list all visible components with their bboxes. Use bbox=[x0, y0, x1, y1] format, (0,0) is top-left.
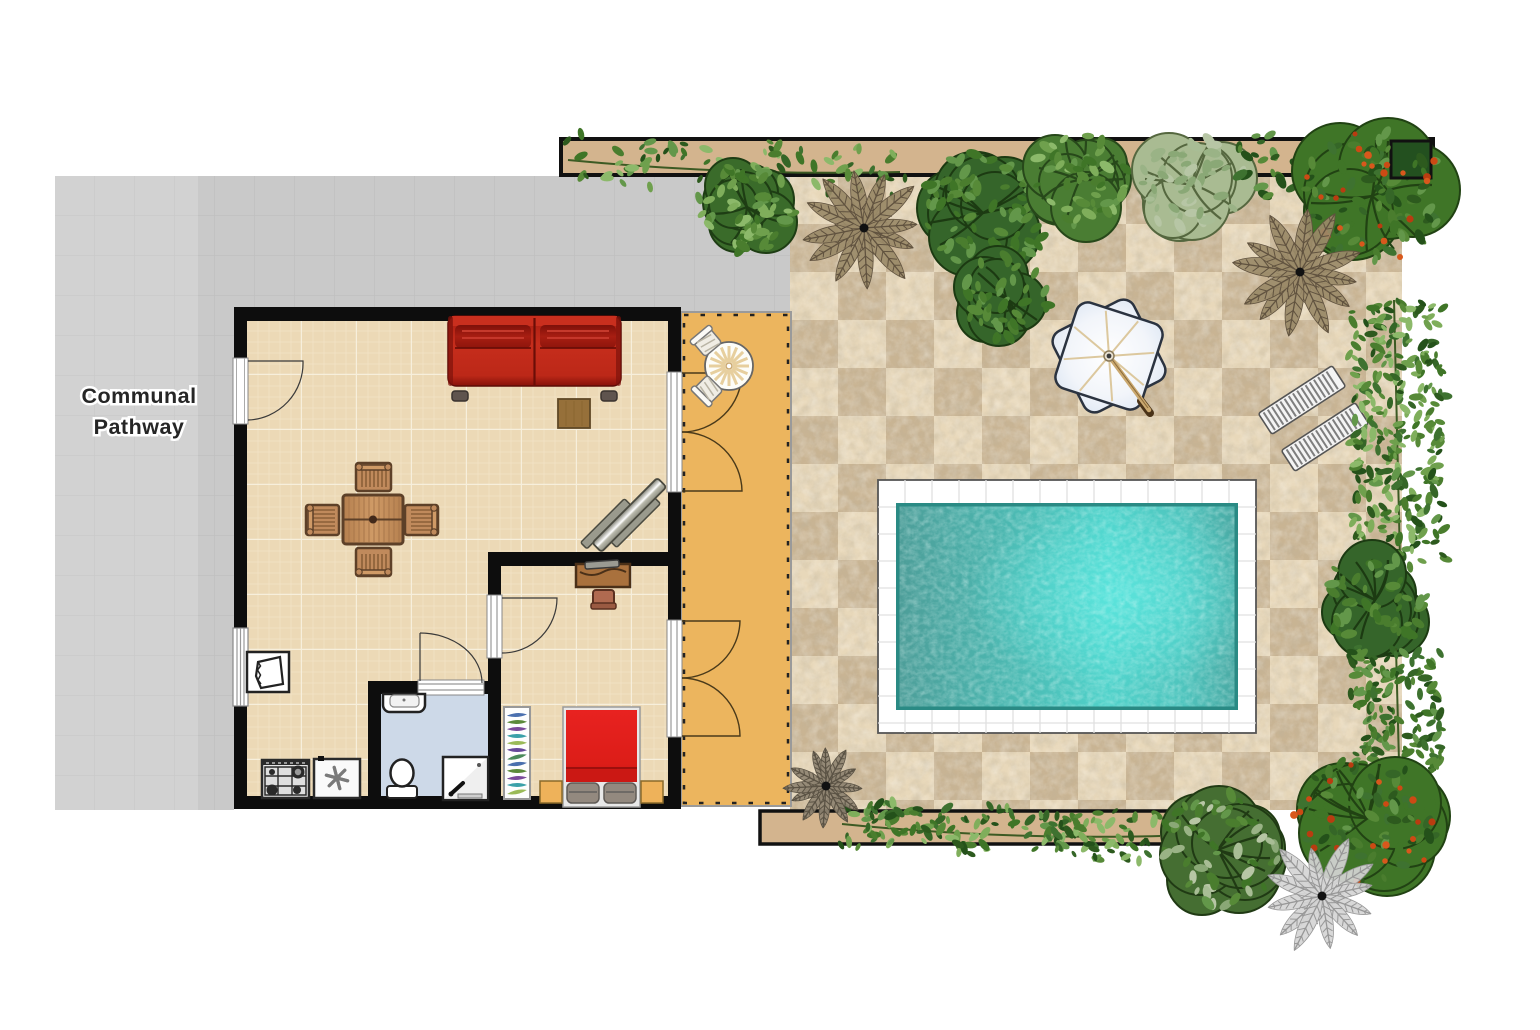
svg-text:Communal: Communal bbox=[81, 384, 196, 408]
svg-text:Pathway: Pathway bbox=[94, 415, 185, 439]
